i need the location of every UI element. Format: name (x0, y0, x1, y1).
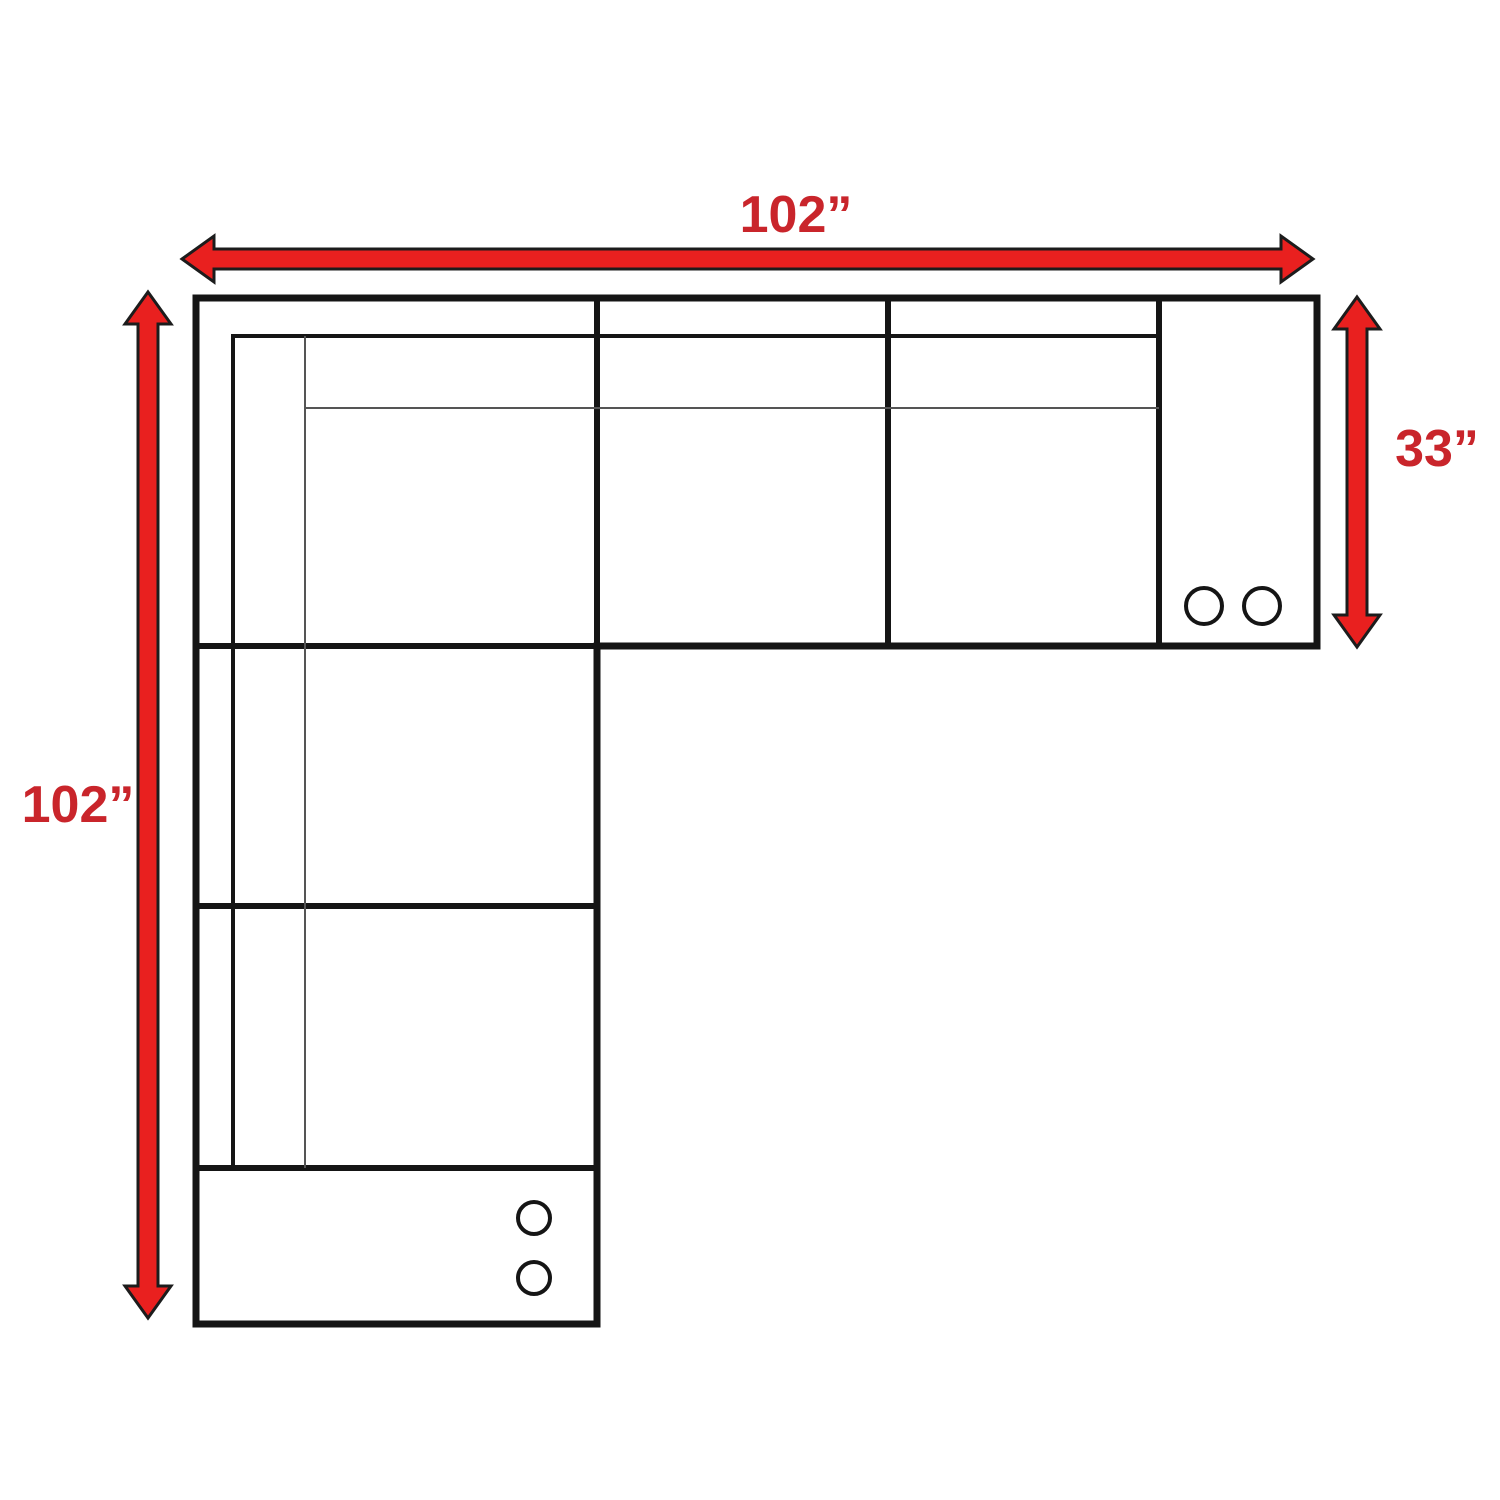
depth-dimension-label: 33” (1395, 420, 1479, 478)
length-dimension-label: 102” (22, 776, 135, 834)
cupholder-icon (518, 1202, 550, 1234)
depth-dimension-arrow-icon (1334, 297, 1380, 647)
cupholder-icon (1186, 588, 1222, 624)
diagram-canvas: 102” 102” 33” (0, 0, 1500, 1500)
cupholder-icon (1244, 588, 1280, 624)
width-dimension-label: 102” (740, 186, 853, 244)
sofa-dimension-diagram: 102” 102” 33” (0, 0, 1500, 1500)
cupholder-icon (518, 1262, 550, 1294)
